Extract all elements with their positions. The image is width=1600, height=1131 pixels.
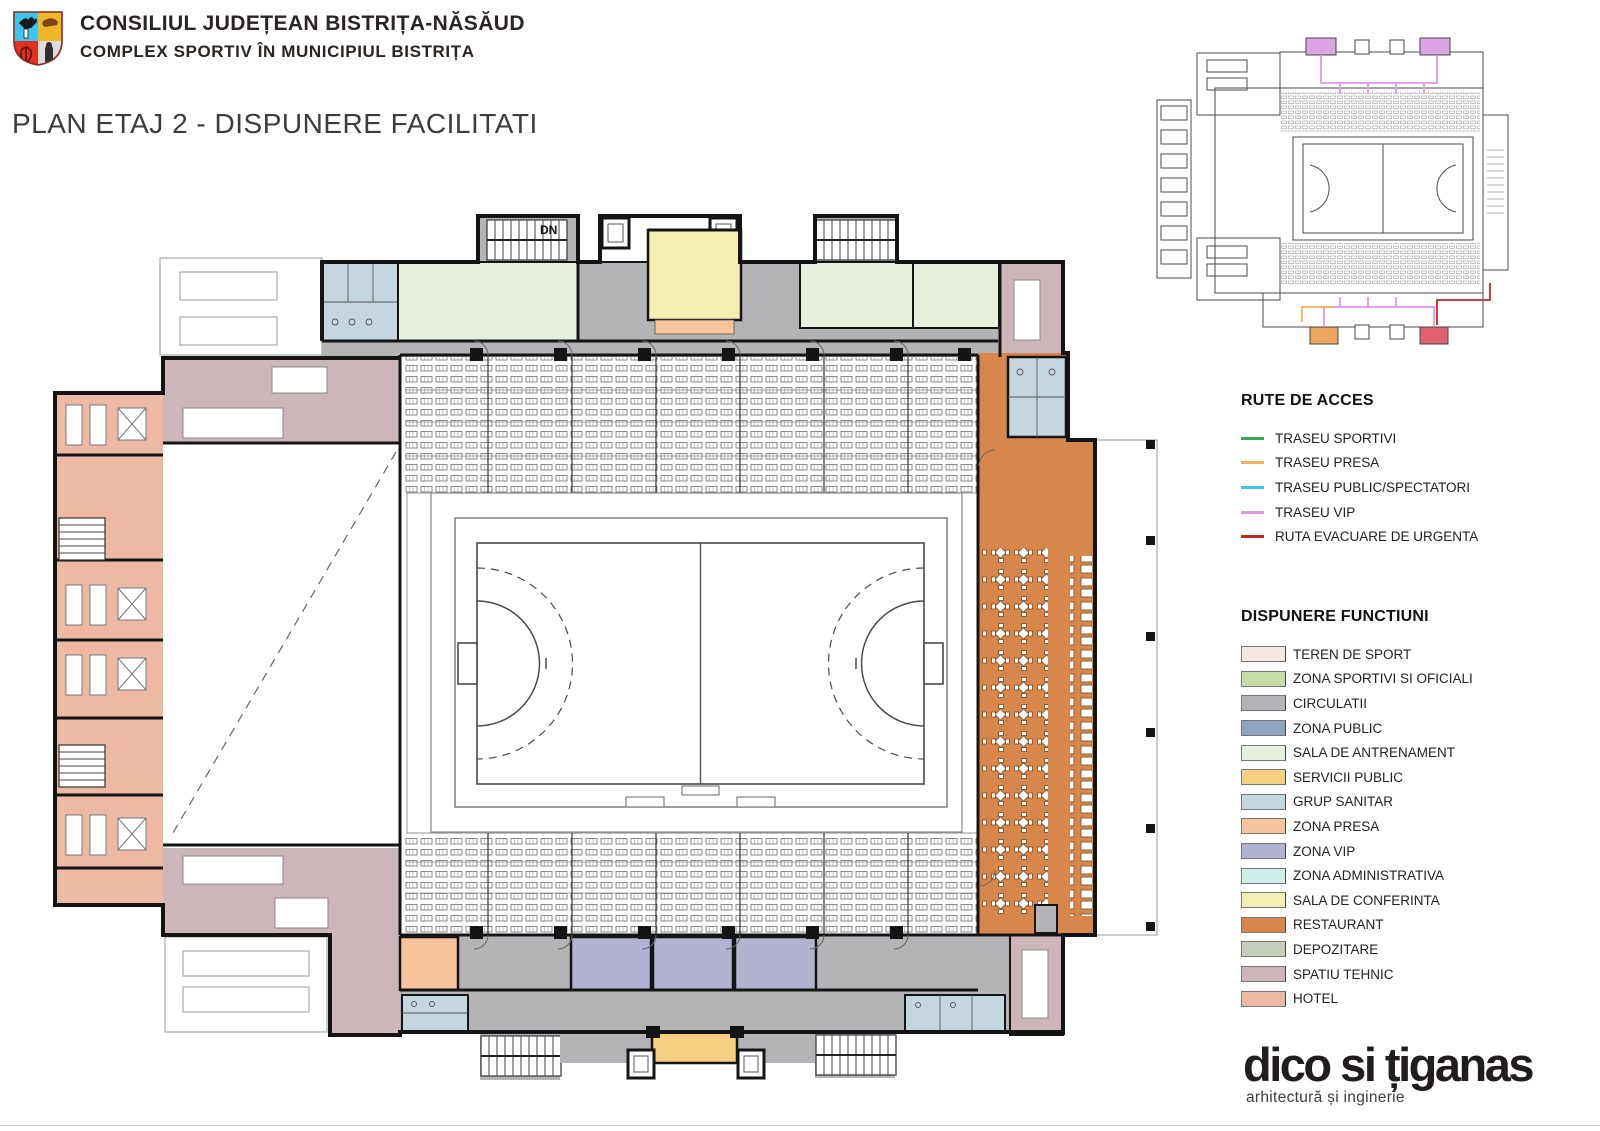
function-color-swatch xyxy=(1241,941,1286,957)
org-name: CONSILIUL JUDEȚEAN BISTRIȚA-NĂSĂUD xyxy=(80,11,525,37)
legend-functions-heading: DISPUNERE FUNCTIUNI xyxy=(1241,608,1473,626)
project-name: COMPLEX SPORTIV ÎN MUNICIPIUL BISTRIȚA xyxy=(80,42,525,62)
arena xyxy=(400,341,978,935)
function-label: RESTAURANT xyxy=(1293,917,1384,932)
legend-routes-heading: RUTE DE ACCES xyxy=(1241,392,1478,410)
legend-functions: DISPUNERE FUNCTIUNI TEREN DE SPORTZONA S… xyxy=(1241,608,1473,1011)
legend-functions-rows: TEREN DE SPORTZONA SPORTIVI SI OFICIALIC… xyxy=(1241,642,1473,1011)
firm-tagline: arhitectură și inginerie xyxy=(1246,1089,1593,1107)
mini-route-press xyxy=(1302,307,1332,322)
function-label: SPATIU TEHNIC xyxy=(1293,967,1394,982)
north-wing: DN xyxy=(322,216,1063,357)
mini-court xyxy=(1293,137,1473,240)
training-hall-void xyxy=(163,443,400,845)
function-color-swatch xyxy=(1241,745,1286,761)
dumbwaiter xyxy=(1035,905,1057,933)
function-color-swatch xyxy=(1241,646,1286,662)
legend-access-routes: RUTE DE ACCES TRASEU SPORTIVITRASEU PRES… xyxy=(1241,392,1478,549)
function-legend-item: HOTEL xyxy=(1241,986,1473,1011)
function-label: SERVICII PUBLIC xyxy=(1293,770,1403,785)
main-floor-plan: DN xyxy=(55,216,1157,1080)
county-coat-of-arms xyxy=(10,9,66,67)
terrace xyxy=(1095,440,1157,935)
function-legend-item: SALA DE CONFERINTA xyxy=(1241,888,1473,913)
function-label: GRUP SANITAR xyxy=(1293,794,1393,809)
function-color-swatch xyxy=(1241,818,1286,834)
function-label: SALA DE ANTRENAMENT xyxy=(1293,745,1455,760)
function-legend-item: ZONA SPORTIVI SI OFICIALI xyxy=(1241,667,1473,692)
stair-dn-label: DN xyxy=(540,223,557,237)
route-legend-item: TRASEU PUBLIC/SPECTATORI xyxy=(1241,475,1478,500)
tech-room-sw2 xyxy=(330,935,400,1035)
training-room-nw xyxy=(398,262,578,341)
vip-room-1 xyxy=(571,937,651,990)
function-legend-item: ZONA VIP xyxy=(1241,839,1473,864)
sheet-bottom-rule xyxy=(0,1125,1600,1126)
vip-room-3 xyxy=(735,937,816,990)
route-legend-item: TRASEU VIP xyxy=(1241,500,1478,525)
conference-room xyxy=(648,230,741,320)
function-label: ZONA SPORTIVI SI OFICIALI xyxy=(1293,671,1473,686)
function-label: SALA DE CONFERINTA xyxy=(1293,893,1440,908)
sanitary-north-west xyxy=(323,262,398,340)
goal-left xyxy=(458,643,477,684)
function-legend-item: GRUP SANITAR xyxy=(1241,790,1473,815)
public-services-room xyxy=(652,1032,737,1063)
function-color-swatch xyxy=(1241,966,1286,982)
function-color-swatch xyxy=(1241,769,1286,785)
function-color-swatch xyxy=(1241,892,1286,908)
function-label: HOTEL xyxy=(1293,991,1338,1006)
function-label: DEPOZITARE xyxy=(1293,942,1378,957)
function-color-swatch xyxy=(1241,991,1286,1007)
function-label: ZONA VIP xyxy=(1293,844,1355,859)
function-color-swatch xyxy=(1241,720,1286,736)
function-legend-item: DEPOZITARE xyxy=(1241,937,1473,962)
training-room-ne1 xyxy=(800,262,913,328)
conference-stage xyxy=(655,320,734,334)
function-label: ZONA PUBLIC xyxy=(1293,721,1382,736)
function-legend-item: SERVICII PUBLIC xyxy=(1241,765,1473,790)
training-room-ne2 xyxy=(913,262,999,328)
function-color-swatch xyxy=(1241,843,1286,859)
legend-routes-rows: TRASEU SPORTIVITRASEU PRESATRASEU PUBLIC… xyxy=(1241,426,1478,549)
press-room xyxy=(400,937,458,990)
route-color-line xyxy=(1241,511,1264,514)
vip-room-2 xyxy=(653,937,733,990)
route-label: TRASEU PUBLIC/SPECTATORI xyxy=(1275,480,1470,495)
function-legend-item: RESTAURANT xyxy=(1241,913,1473,938)
function-legend-item: ZONA ADMINISTRATIVA xyxy=(1241,863,1473,888)
function-legend-item: ZONA PRESA xyxy=(1241,814,1473,839)
route-label: TRASEU VIP xyxy=(1275,505,1355,520)
firm-logo: dico si țiganas arhitectură și inginerie xyxy=(1243,1040,1593,1107)
sanitary-south-west xyxy=(402,995,468,1032)
goal-right xyxy=(924,643,943,684)
route-legend-item: RUTA EVACUARE DE URGENTA xyxy=(1241,524,1478,549)
function-color-swatch xyxy=(1241,695,1286,711)
route-color-line xyxy=(1241,437,1264,440)
function-legend-item: TEREN DE SPORT xyxy=(1241,642,1473,667)
route-legend-item: TRASEU SPORTIVI xyxy=(1241,426,1478,451)
overview-plan xyxy=(1157,38,1508,344)
route-label: RUTA EVACUARE DE URGENTA xyxy=(1275,529,1478,544)
drawing-sheet: DN xyxy=(0,0,1600,1131)
restaurant-tables xyxy=(982,548,1048,916)
mini-terrace xyxy=(1483,115,1508,270)
function-legend-item: SPATIU TEHNIC xyxy=(1241,962,1473,987)
firm-name: dico si țiganas xyxy=(1243,1040,1593,1089)
sheet-title: PLAN ETAJ 2 - DISPUNERE FACILITATI xyxy=(12,108,538,140)
function-color-swatch xyxy=(1241,794,1286,810)
route-label: TRASEU SPORTIVI xyxy=(1275,431,1396,446)
header: CONSILIUL JUDEȚEAN BISTRIȚA-NĂSĂUD COMPL… xyxy=(10,9,525,67)
mini-route-evac xyxy=(1437,283,1490,325)
function-label: TEREN DE SPORT xyxy=(1293,647,1411,662)
route-color-line xyxy=(1241,535,1264,538)
route-color-line xyxy=(1241,486,1264,489)
function-color-swatch xyxy=(1241,671,1286,687)
route-label: TRASEU PRESA xyxy=(1275,455,1379,470)
south-wing xyxy=(400,935,1063,1080)
function-label: ZONA ADMINISTRATIVA xyxy=(1293,868,1444,883)
function-color-swatch xyxy=(1241,917,1286,933)
function-legend-item: ZONA PUBLIC xyxy=(1241,716,1473,741)
function-color-swatch xyxy=(1241,868,1286,884)
route-legend-item: TRASEU PRESA xyxy=(1241,451,1478,476)
route-color-line xyxy=(1241,461,1264,464)
function-label: CIRCULATII xyxy=(1293,696,1367,711)
function-legend-item: SALA DE ANTRENAMENT xyxy=(1241,740,1473,765)
sanitary-south-east xyxy=(905,995,1005,1032)
function-legend-item: CIRCULATII xyxy=(1241,691,1473,716)
mini-hotel-wing xyxy=(1157,100,1191,278)
function-label: ZONA PRESA xyxy=(1293,819,1379,834)
